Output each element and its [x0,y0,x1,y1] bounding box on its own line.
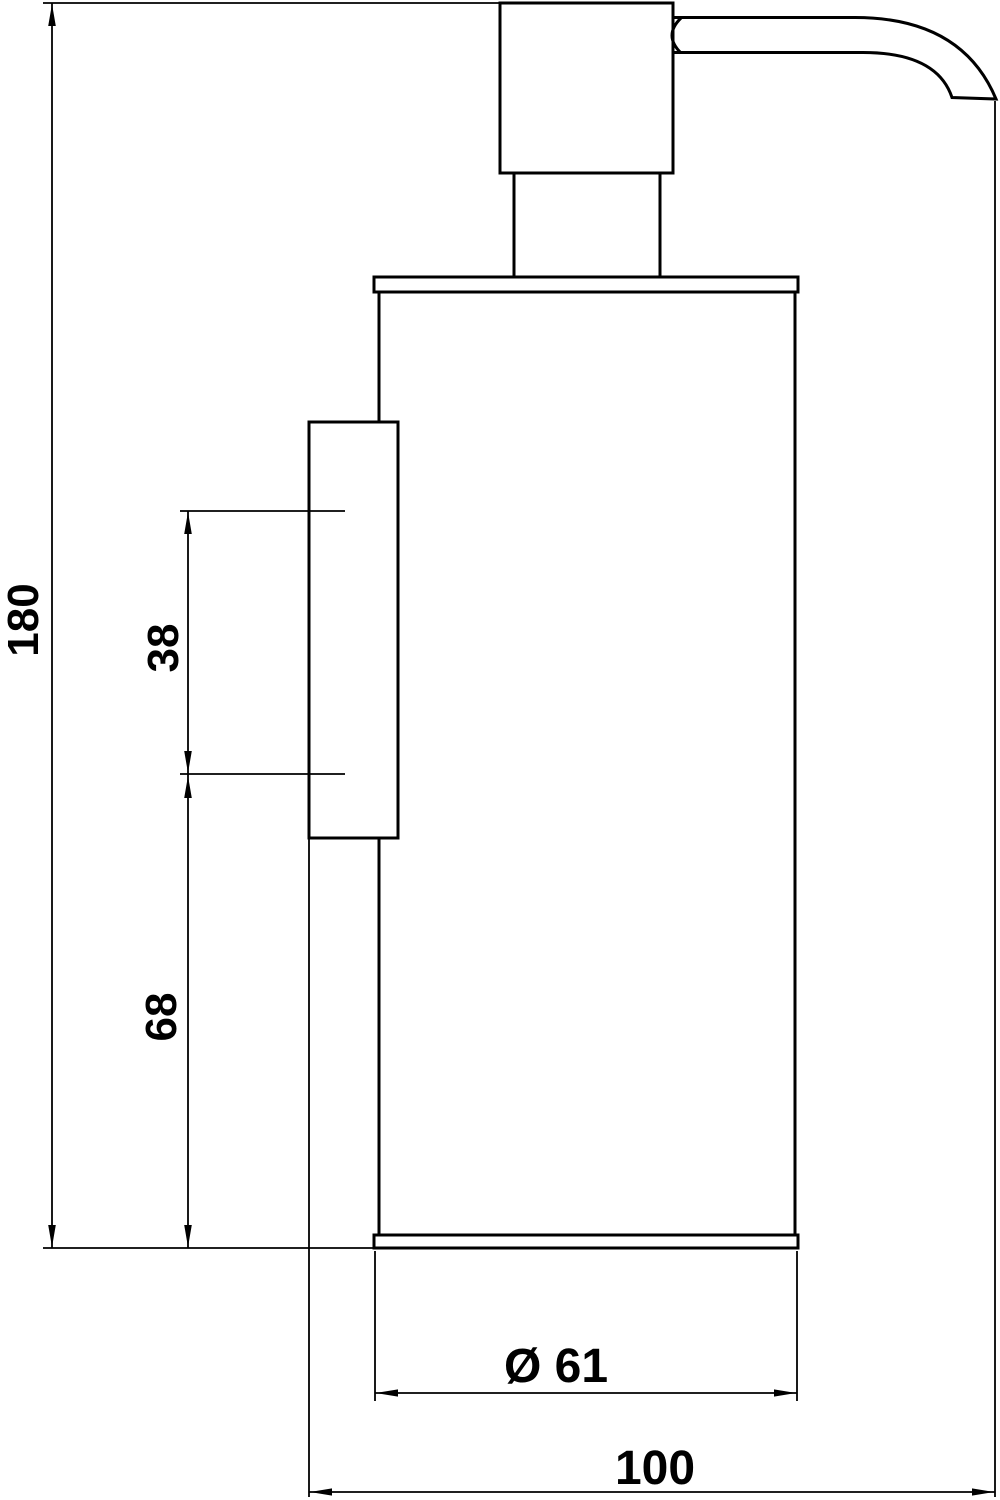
dimension-label-38: 38 [139,624,188,673]
dimension-label-100: 100 [615,1442,695,1495]
spout [673,18,996,100]
dimension-label-diameter-61: Ø 61 [504,1340,608,1393]
arrowhead-d61-right [774,1389,796,1396]
dimension-label-68: 68 [137,993,186,1042]
drawing-canvas: 180 38 68 Ø 61 100 [0,0,1000,1500]
arrowhead-38-up [184,512,192,534]
dimension-label-180: 180 [0,583,48,656]
pump-neck [514,173,660,277]
arrowhead-68-up [184,776,192,798]
arrowhead-38-down [184,751,192,773]
arrowhead-100-left [310,1488,332,1495]
arrowhead-180-down [48,1225,56,1247]
arrowhead-180-up [48,4,56,26]
bottom-collar [374,1235,798,1248]
wall-mounting-plate [309,422,398,838]
arrowhead-d61-left [376,1389,398,1396]
pump-head [500,3,673,173]
arrowhead-100-right [972,1488,994,1495]
arrowhead-68-down [184,1225,192,1247]
technical-drawing: 180 38 68 Ø 61 100 [0,0,1000,1500]
dispenser-body [379,292,795,1235]
top-collar [374,277,798,292]
dispenser-outline [309,3,996,1248]
